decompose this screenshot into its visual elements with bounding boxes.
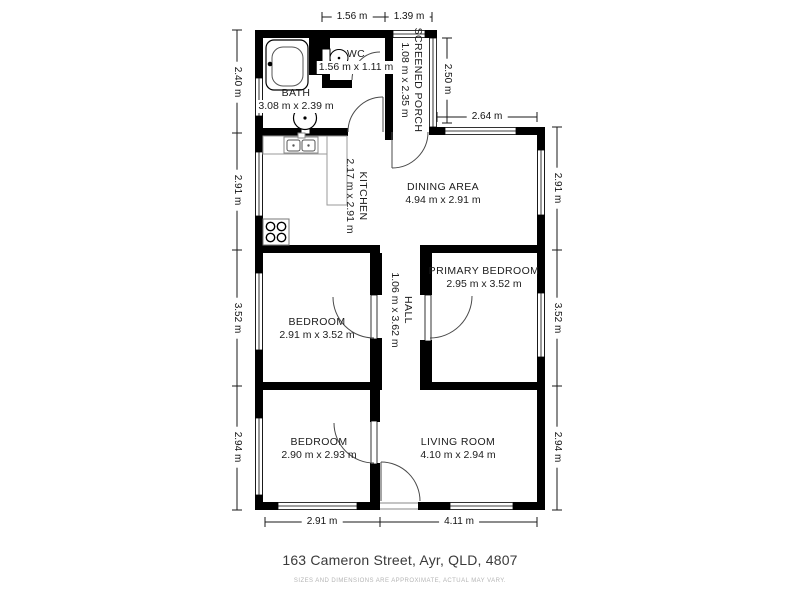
hall-dims: 1.06 m x 3.62 m: [388, 272, 401, 347]
primary-bedroom-dims: 2.95 m x 3.52 m: [429, 278, 540, 291]
front-door-threshold: [380, 502, 418, 510]
dim-right-3: 2.94 m: [551, 427, 563, 468]
room-label-primary-bedroom: PRIMARY BEDROOM 2.95 m x 3.52 m: [429, 265, 540, 291]
porch-door-arc: [392, 132, 428, 168]
bath-door-arc: [348, 97, 383, 132]
address-title: 163 Cameron Street, Ayr, QLD, 4807: [0, 552, 800, 568]
living-dims: 4.10 m x 2.94 m: [420, 449, 495, 462]
stove-icon: [263, 219, 289, 245]
bath-name: BATH: [256, 87, 335, 100]
dim-left-1: 2.40 m: [231, 62, 243, 103]
dining-name: DINING AREA: [405, 181, 480, 194]
hall-name: HALL: [401, 272, 414, 347]
room-label-wc: WC 1.56 m x 1.11 m: [317, 48, 396, 74]
bedroom-bottom-dims: 2.90 m x 2.93 m: [281, 449, 356, 462]
wc-dims: 1.56 m x 1.11 m: [317, 61, 396, 74]
primary-bedroom-door-panel: [425, 295, 431, 341]
screened-porch-dims: 1.08 m x 2.35 m: [398, 28, 411, 133]
bedroom-mid-dims: 2.91 m x 3.52 m: [279, 329, 354, 342]
screened-porch-name: SCREENED PORCH: [411, 28, 424, 133]
dim-left-4: 2.94 m: [231, 427, 243, 468]
dim-right-1: 2.91 m: [551, 168, 563, 209]
dim-porch-height: 2.50 m: [441, 59, 453, 100]
dim-left-3: 3.52 m: [231, 298, 243, 339]
room-label-bedroom-bottom: BEDROOM 2.90 m x 2.93 m: [281, 436, 356, 462]
kitchen-dims: 2.17 m x 2.91 m: [343, 158, 356, 233]
room-label-dining: DINING AREA 4.94 m x 2.91 m: [405, 181, 480, 207]
bedroom-bottom-name: BEDROOM: [281, 436, 356, 449]
front-door-arc: [381, 462, 420, 501]
bedroom-mid-name: BEDROOM: [279, 316, 354, 329]
dim-top-1: 1.56 m: [332, 11, 373, 23]
bathtub-icon: [266, 40, 308, 90]
room-label-hall: HALL 1.06 m x 3.62 m: [388, 272, 414, 347]
bath-dims: 3.08 m x 2.39 m: [256, 100, 335, 113]
dim-top-right-width: 2.64 m: [467, 111, 508, 123]
dim-left-2: 2.91 m: [231, 170, 243, 211]
room-label-living: LIVING ROOM 4.10 m x 2.94 m: [420, 436, 495, 462]
living-name: LIVING ROOM: [420, 436, 495, 449]
kitchen-name: KITCHEN: [356, 158, 369, 233]
dim-bottom-2: 4.11 m: [439, 516, 479, 528]
room-label-bath: BATH 3.08 m x 2.39 m: [256, 87, 335, 113]
bedroom2-door-panel: [371, 421, 377, 464]
wc-name: WC: [317, 48, 396, 61]
primary-bedroom-name: PRIMARY BEDROOM: [429, 265, 540, 278]
dim-bottom-1: 2.91 m: [302, 516, 343, 528]
disclaimer-text: SIZES AND DIMENSIONS ARE APPROXIMATE, AC…: [0, 578, 800, 584]
dim-right-2: 3.52 m: [551, 298, 563, 339]
dim-top-2: 1.39 m: [389, 11, 430, 23]
floor-plan-page: BATH 3.08 m x 2.39 m WC 1.56 m x 1.11 m …: [0, 0, 800, 600]
primary-bedroom-door-arc: [430, 296, 472, 338]
dining-dims: 4.94 m x 2.91 m: [405, 194, 480, 207]
bedroom-door-panel: [371, 295, 377, 339]
room-label-bedroom-mid: BEDROOM 2.91 m x 3.52 m: [279, 316, 354, 342]
room-label-screened-porch: SCREENED PORCH 1.08 m x 2.35 m: [398, 28, 424, 133]
room-label-kitchen: KITCHEN 2.17 m x 2.91 m: [343, 158, 369, 233]
